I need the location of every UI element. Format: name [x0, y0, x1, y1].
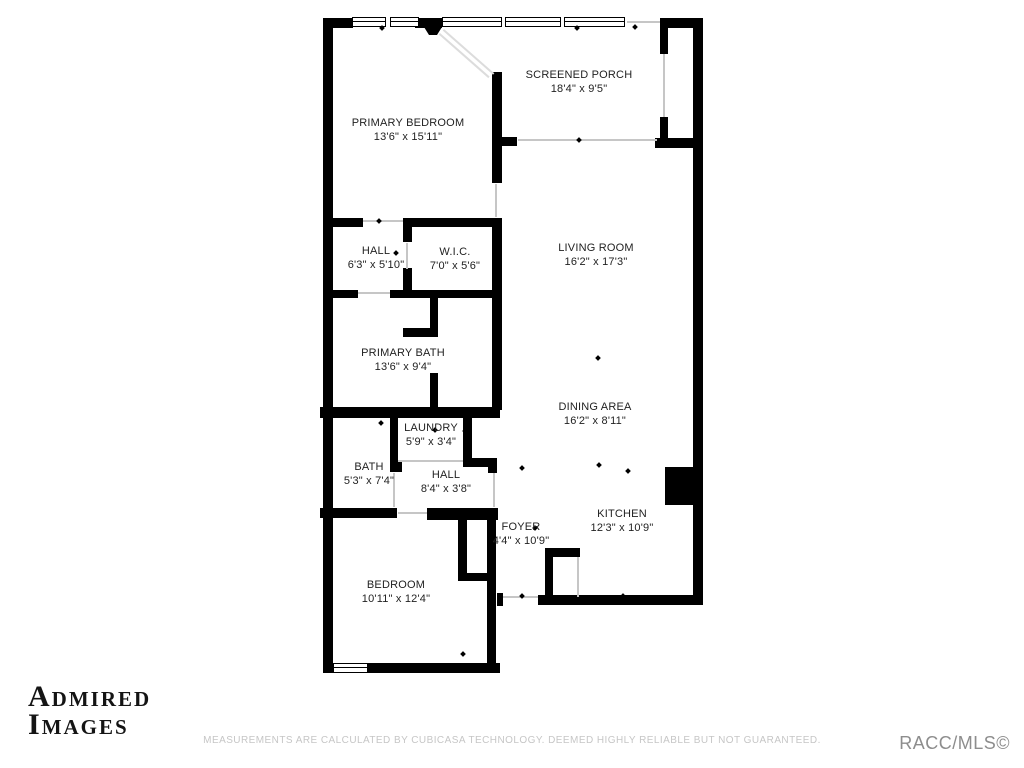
door-opening [627, 21, 660, 23]
wall-segment [545, 548, 553, 597]
room-label-screened-porch: SCREENED PORCH 18'4" x 9'5" [526, 69, 633, 96]
wall-segment [330, 218, 363, 227]
measurement-tick [625, 468, 631, 474]
room-label-laundry: LAUNDRY 5'9" x 3'4" [404, 422, 458, 449]
room-dims: 7'0" x 5'6" [430, 260, 480, 274]
room-dims: 18'4" x 9'5" [526, 83, 633, 97]
wall-segment [323, 18, 333, 673]
room-label-bath: BATH 5'3" x 7'4" [344, 461, 394, 488]
wall-segment [660, 18, 668, 54]
room-label-primary-bedroom: PRIMARY BEDROOM 13'6" x 15'11" [352, 117, 465, 144]
wall-segment [492, 218, 502, 410]
room-dims: 13'6" x 9'4" [361, 361, 445, 375]
watermark-line-1: ADMIRED [28, 684, 151, 712]
wall-segment [327, 290, 358, 298]
room-dims: 16'2" x 17'3" [558, 256, 634, 270]
wall-segment [655, 138, 703, 148]
measurement-tick [519, 465, 525, 471]
room-label-dining-area: DINING AREA 16'2" x 8'11" [558, 401, 631, 428]
disclaimer-text: MEASUREMENTS ARE CALCULATED BY CUBICASA … [0, 735, 1024, 746]
room-label-primary-bath: PRIMARY BATH 13'6" x 9'4" [361, 347, 445, 374]
room-dims: 13'6" x 15'11" [352, 131, 465, 145]
wall-segment [497, 593, 503, 606]
measurement-tick [595, 355, 601, 361]
wall-segment [458, 518, 467, 578]
window [505, 17, 561, 27]
room-dims: 16'2" x 8'11" [558, 415, 631, 429]
door-opening [358, 292, 390, 294]
wall-segment [403, 218, 412, 242]
room-label-kitchen: KITCHEN 12'3" x 10'9" [591, 508, 654, 535]
wall-segment [458, 573, 495, 581]
room-name: FOYER [493, 521, 550, 535]
room-dims: 5'3" x 7'4" [344, 475, 394, 489]
room-name: W.I.C. [430, 246, 480, 260]
angled-screen-wall [443, 29, 495, 75]
room-name: LIVING ROOM [558, 242, 634, 256]
room-name: HALL [421, 469, 471, 483]
wall-segment [463, 418, 472, 459]
wall-segment [693, 18, 703, 605]
room-name: KITCHEN [591, 508, 654, 522]
door-opening [406, 243, 408, 269]
room-label-living-room: LIVING ROOM 16'2" x 17'3" [558, 242, 634, 269]
wall-segment [403, 328, 438, 337]
room-dims: 10'11" x 12'4" [362, 593, 430, 607]
room-name: DINING AREA [558, 401, 631, 415]
door-opening [663, 54, 665, 117]
door-opening [398, 460, 463, 462]
measurement-tick [596, 462, 602, 468]
room-name: BATH [344, 461, 394, 475]
room-dims: 6'3" x 5'10" [348, 259, 405, 273]
wall-segment [492, 72, 502, 183]
room-dims: 12'3" x 10'9" [591, 522, 654, 536]
room-dims: 5'9" x 3'4" [404, 436, 458, 450]
room-dims: 4'4" x 10'9" [493, 535, 550, 549]
room-label-foyer: FOYER 4'4" x 10'9" [493, 521, 550, 548]
door-opening [518, 139, 657, 141]
wall-segment [488, 458, 497, 473]
room-name: SCREENED PORCH [526, 69, 633, 83]
window [333, 663, 368, 673]
mls-credit: RACC/MLS© [899, 733, 1010, 754]
wall-segment [320, 407, 500, 418]
room-label-hall-upper: HALL 6'3" x 5'10" [348, 245, 405, 272]
measurement-tick [378, 420, 384, 426]
wall-segment [498, 137, 517, 146]
measurement-tick [460, 651, 466, 657]
room-name: PRIMARY BEDROOM [352, 117, 465, 131]
room-label-bedroom: BEDROOM 10'11" x 12'4" [362, 579, 430, 606]
door-opening [493, 473, 495, 507]
angled-wall-corner [424, 27, 442, 35]
watermark-logo: ADMIRED IMAGES [28, 684, 151, 740]
room-name: PRIMARY BATH [361, 347, 445, 361]
angled-screen-wall [439, 33, 490, 78]
door-opening [363, 220, 403, 222]
room-name: LAUNDRY [404, 422, 458, 436]
floor-plan: PRIMARY BEDROOM 13'6" x 15'11" SCREENED … [0, 0, 1024, 768]
wall-segment [390, 290, 497, 298]
room-name: HALL [348, 245, 405, 259]
wall-segment [320, 508, 397, 518]
wall-segment [430, 373, 438, 409]
wall-segment [323, 18, 353, 28]
door-opening [495, 184, 497, 217]
window [390, 17, 419, 27]
window [564, 17, 625, 27]
measurement-tick [632, 24, 638, 30]
room-dims: 8'4" x 3'8" [421, 483, 471, 497]
room-label-wic: W.I.C. 7'0" x 5'6" [430, 246, 480, 273]
door-opening [577, 557, 579, 597]
room-label-hall-lower: HALL 8'4" x 3'8" [421, 469, 471, 496]
kitchen-fixture-block [665, 467, 703, 505]
window [442, 17, 502, 27]
wall-segment [367, 663, 500, 673]
door-opening [398, 512, 427, 514]
wall-segment [390, 418, 398, 464]
room-name: BEDROOM [362, 579, 430, 593]
